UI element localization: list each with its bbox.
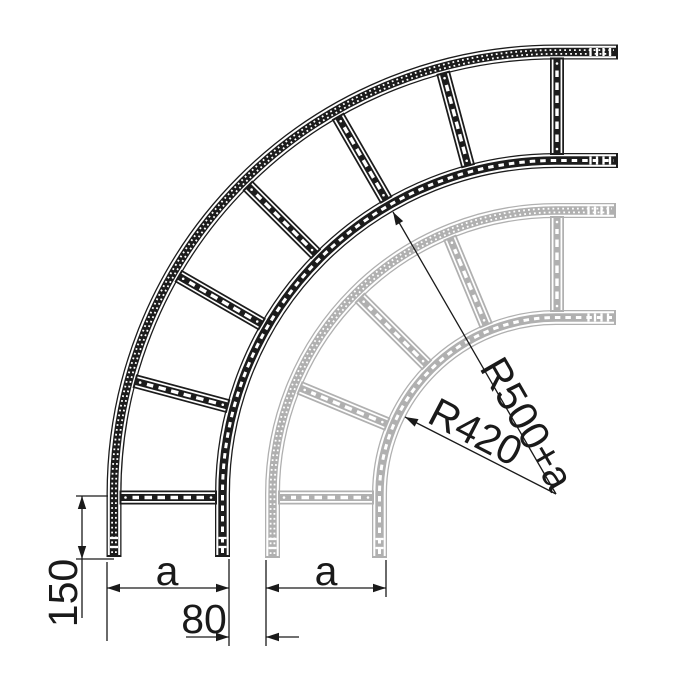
dimension-arrowhead [78,546,86,559]
dim-front-width-label: a [156,548,179,594]
rung [278,493,374,502]
rung [335,116,389,201]
dim-back-width-label: a [315,548,338,594]
cable-ladder-bend-drawing: 150 a 80 a R500+a R420 [0,0,691,683]
dim-leg-length-label: 150 [40,559,86,627]
dimension-arrowhead [107,584,120,592]
rung [246,184,318,256]
dimension-arrowhead [405,417,418,427]
rung [299,384,388,427]
dimension-arrowhead [393,212,403,225]
drawing-canvas: 150 a 80 a R500+a R420 [0,0,691,683]
dimension-arrowhead [266,633,279,641]
rung [178,273,263,327]
rung [553,58,562,156]
dimension-arrowhead [266,584,279,592]
dimension-arrowhead [216,584,229,592]
rung [358,296,429,367]
rung [439,72,472,166]
rung [120,493,218,502]
rung [134,377,228,410]
dim-back-width: a [266,548,386,646]
dimension-arrowhead [78,496,86,509]
dim-leg-length: 150 [40,496,114,627]
rung [553,216,562,312]
dimension-arrowhead [373,584,386,592]
dim-ladder-gap: 80 [181,596,299,642]
rung [446,237,489,326]
